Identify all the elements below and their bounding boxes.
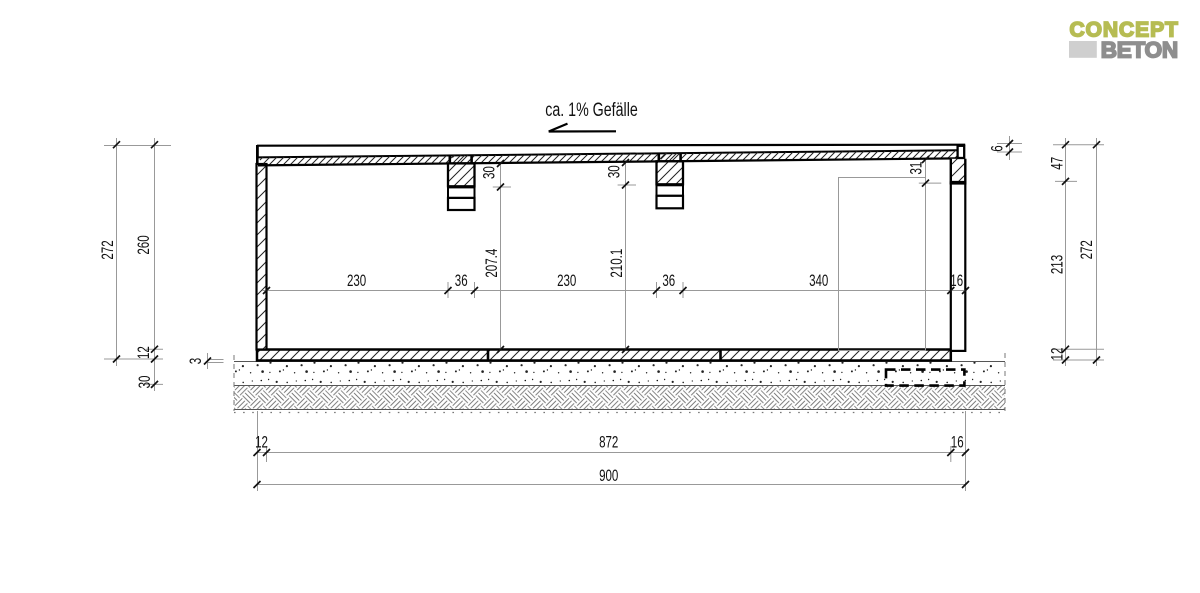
- svg-text:30: 30: [606, 165, 625, 178]
- svg-text:12: 12: [255, 434, 268, 453]
- svg-text:872: 872: [599, 434, 618, 453]
- svg-text:BETON: BETON: [1101, 38, 1178, 63]
- svg-text:230: 230: [557, 272, 576, 291]
- svg-text:230: 230: [347, 272, 366, 291]
- svg-text:272: 272: [1078, 240, 1097, 259]
- svg-text:340: 340: [809, 272, 828, 291]
- svg-text:12: 12: [135, 346, 154, 359]
- svg-text:12: 12: [1048, 348, 1067, 361]
- svg-text:900: 900: [599, 467, 618, 486]
- svg-text:30: 30: [481, 166, 500, 179]
- svg-text:31: 31: [908, 162, 927, 175]
- svg-text:3: 3: [187, 358, 206, 364]
- svg-text:30: 30: [136, 376, 155, 389]
- svg-text:272: 272: [99, 240, 118, 259]
- svg-text:16: 16: [951, 434, 964, 453]
- svg-text:ca. 1% Gefälle: ca. 1% Gefälle: [545, 99, 638, 121]
- svg-text:16: 16: [950, 272, 963, 291]
- svg-text:260: 260: [135, 235, 154, 254]
- svg-text:210.1: 210.1: [608, 249, 627, 278]
- svg-text:207.4: 207.4: [483, 249, 502, 278]
- svg-text:6: 6: [989, 145, 1008, 151]
- svg-text:47: 47: [1048, 157, 1067, 170]
- svg-text:36: 36: [455, 272, 468, 291]
- svg-text:213: 213: [1048, 255, 1067, 274]
- svg-text:36: 36: [662, 272, 675, 291]
